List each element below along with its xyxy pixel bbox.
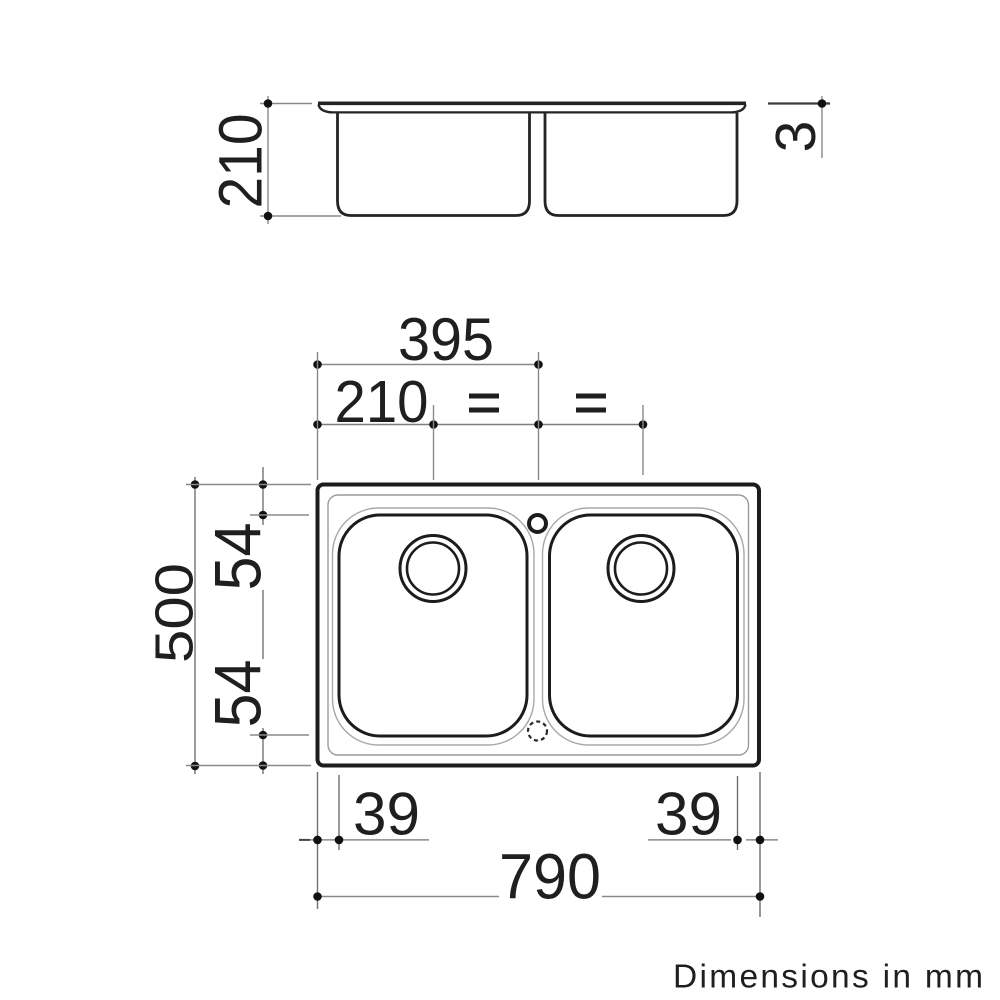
- svg-text:39: 39: [655, 781, 722, 848]
- svg-text:395: 395: [398, 306, 494, 373]
- svg-text:Dimensions in mm: Dimensions in mm: [673, 959, 985, 996]
- svg-text:210: 210: [335, 369, 429, 435]
- svg-text:54: 54: [201, 523, 275, 591]
- svg-text:3: 3: [764, 121, 828, 153]
- svg-text:210: 210: [207, 114, 275, 209]
- svg-text:790: 790: [499, 841, 601, 913]
- svg-text:39: 39: [353, 781, 420, 848]
- svg-text:54: 54: [201, 660, 275, 728]
- svg-text:500: 500: [145, 563, 205, 663]
